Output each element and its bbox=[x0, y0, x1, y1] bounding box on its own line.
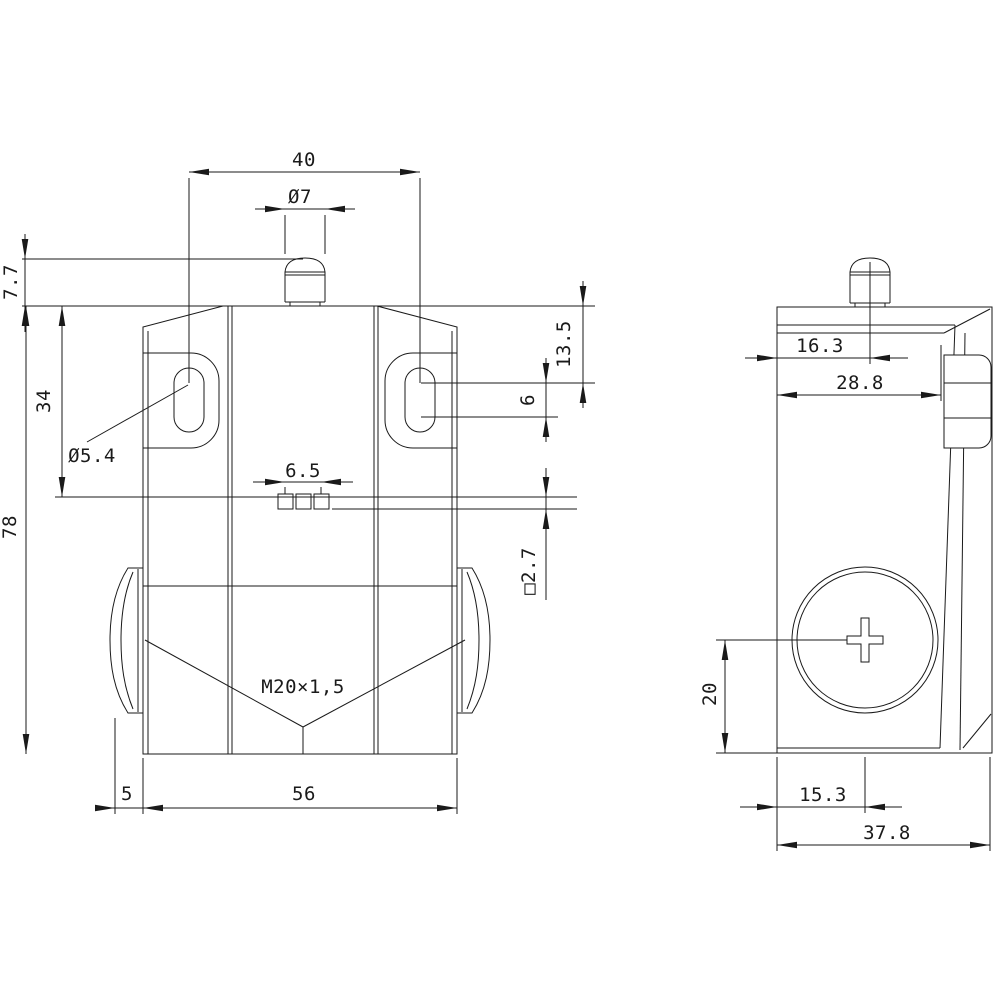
dim-plunger-from-front-value: 16.3 bbox=[796, 335, 844, 357]
front-view: 40 Ø7 7.7 3 bbox=[0, 149, 595, 814]
mounting-ear-right bbox=[385, 353, 457, 448]
dim-cap-protrusion-value: 5 bbox=[121, 783, 133, 805]
dim-screw-from-bottom: 20 bbox=[699, 640, 847, 753]
dim-screw-from-bottom-value: 20 bbox=[699, 682, 721, 706]
side-body bbox=[777, 258, 992, 753]
cable-cap-right bbox=[457, 568, 490, 713]
dim-bottom-widths: 5 56 bbox=[95, 718, 457, 814]
dim-plunger-height-value: 7.7 bbox=[0, 264, 22, 300]
dim-plunger-dia: Ø7 bbox=[255, 186, 355, 254]
dim-terminal-square-value: □2.7 bbox=[518, 547, 540, 595]
dim-hole-dia: Ø5.4 bbox=[68, 385, 188, 467]
dim-body-width-value: 56 bbox=[292, 783, 316, 805]
dim-hole-dia-value: Ø5.4 bbox=[68, 445, 116, 467]
dim-hole-center-from-top: 34 bbox=[33, 306, 62, 497]
dim-front-depth-value: 28.8 bbox=[836, 372, 884, 394]
dim-body-height: 78 bbox=[0, 306, 26, 754]
dim-screw-from-front-value: 15.3 bbox=[799, 784, 847, 806]
dim-terminal-pitch-value: 6.5 bbox=[285, 460, 321, 482]
dim-plunger-height: 7.7 bbox=[0, 234, 595, 332]
terminals bbox=[278, 494, 329, 509]
dim-conduit-thread-value: M20×1,5 bbox=[261, 676, 345, 698]
terminal-3 bbox=[314, 494, 329, 509]
dim-body-height-value: 78 bbox=[0, 515, 21, 539]
dim-plunger-dia-value: Ø7 bbox=[288, 186, 312, 208]
cover-latch bbox=[944, 355, 991, 448]
technical-drawing: 40 Ø7 7.7 3 bbox=[0, 0, 1000, 1000]
terminal-2 bbox=[296, 494, 311, 509]
dim-slot-length: 6 bbox=[421, 358, 558, 442]
front-view-dimensions: 40 Ø7 7.7 3 bbox=[0, 149, 595, 814]
dim-hole-center-value: 34 bbox=[33, 389, 55, 413]
dim-hole-spacing-value: 40 bbox=[292, 149, 316, 171]
cable-cap-left bbox=[110, 568, 143, 713]
dim-terminal-square: □2.7 bbox=[518, 468, 546, 600]
mounting-ear-left bbox=[143, 353, 219, 448]
plunger-side bbox=[850, 258, 890, 364]
dim-slot-top-offset: 13.5 bbox=[421, 281, 595, 408]
dim-hole-spacing: 40 bbox=[189, 149, 420, 383]
dim-plunger-from-front: 16.3 bbox=[745, 335, 908, 358]
dim-conduit-thread: M20×1,5 bbox=[145, 640, 465, 754]
dim-overall-depth-value: 37.8 bbox=[863, 822, 911, 844]
dim-terminal-pitch: 6.5 bbox=[253, 460, 353, 494]
terminal-1 bbox=[278, 494, 293, 509]
phillips-screw-cross bbox=[847, 618, 883, 662]
dim-slot-length-value: 6 bbox=[517, 394, 539, 406]
side-view: 16.3 28.8 20 15.3 bbox=[699, 258, 992, 851]
plunger-front bbox=[285, 258, 325, 306]
dim-slot-top-offset-value: 13.5 bbox=[553, 320, 575, 368]
